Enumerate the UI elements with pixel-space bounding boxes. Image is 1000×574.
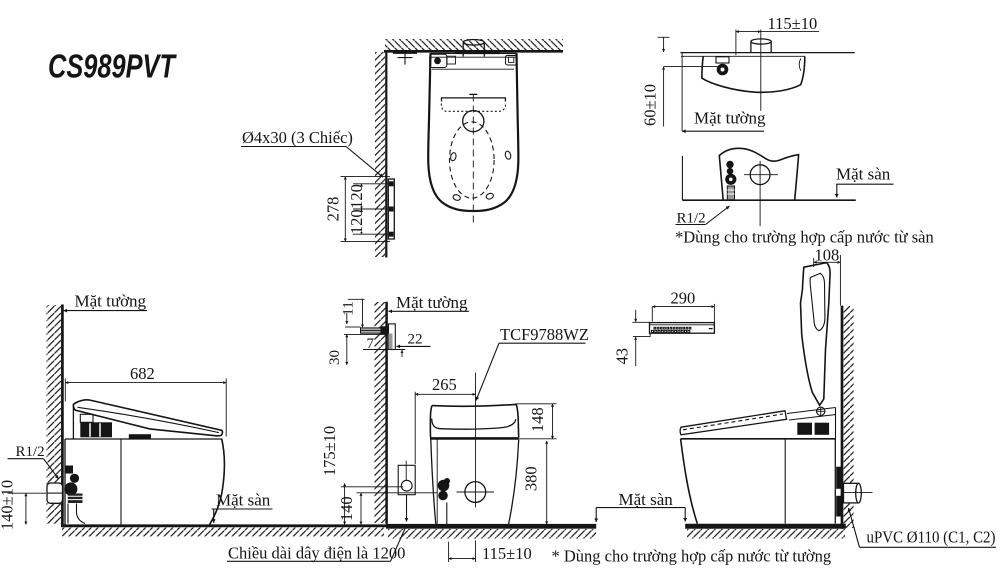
svg-text:Mặt sàn: Mặt sàn bbox=[216, 491, 271, 510]
svg-text:uPVC Ø110 (C1, C2): uPVC Ø110 (C1, C2) bbox=[867, 528, 996, 547]
svg-text:*Dùng cho trường hợp cấp nước: *Dùng cho trường hợp cấp nước từ sàn bbox=[675, 228, 934, 247]
svg-text:108: 108 bbox=[815, 246, 840, 265]
svg-text:Mặt sàn: Mặt sàn bbox=[836, 165, 891, 184]
svg-text:Mặt sàn: Mặt sàn bbox=[619, 490, 674, 509]
svg-text:682: 682 bbox=[130, 364, 155, 383]
svg-text:120: 120 bbox=[347, 184, 366, 209]
svg-text:278: 278 bbox=[324, 197, 343, 222]
svg-text:11: 11 bbox=[341, 301, 357, 315]
svg-text:43: 43 bbox=[613, 348, 632, 365]
svg-text:Mặt tường: Mặt tường bbox=[75, 292, 147, 311]
svg-text:380: 380 bbox=[522, 466, 541, 491]
svg-text:CS989PVT: CS989PVT bbox=[48, 48, 177, 85]
svg-text:7: 7 bbox=[367, 336, 375, 352]
svg-text:175±10: 175±10 bbox=[320, 426, 339, 476]
svg-text:Chiều dài dây điện là 1200: Chiều dài dây điện là 1200 bbox=[228, 544, 405, 563]
svg-text:120: 120 bbox=[347, 209, 366, 234]
svg-text:R1/2: R1/2 bbox=[16, 444, 45, 460]
svg-text:148: 148 bbox=[528, 407, 547, 432]
svg-text:140±10: 140±10 bbox=[0, 480, 17, 530]
svg-text:22: 22 bbox=[408, 332, 423, 348]
svg-text:Mặt tường: Mặt tường bbox=[396, 293, 468, 312]
svg-text:TCF9788WZ: TCF9788WZ bbox=[500, 325, 589, 344]
svg-text:115±10: 115±10 bbox=[482, 544, 532, 563]
svg-text:30: 30 bbox=[327, 350, 343, 365]
svg-text:Mặt tường: Mặt tường bbox=[694, 109, 766, 128]
svg-text:265: 265 bbox=[432, 375, 457, 394]
svg-text:290: 290 bbox=[671, 289, 696, 308]
svg-text:* Dùng cho trường hợp cấp nước: * Dùng cho trường hợp cấp nước từ tường bbox=[552, 547, 832, 566]
svg-text:60±10: 60±10 bbox=[641, 84, 660, 126]
svg-text:Ø4x30 (3 Chiếc): Ø4x30 (3 Chiếc) bbox=[242, 128, 353, 147]
svg-text:140: 140 bbox=[337, 496, 356, 521]
svg-text:115±10: 115±10 bbox=[768, 14, 818, 33]
